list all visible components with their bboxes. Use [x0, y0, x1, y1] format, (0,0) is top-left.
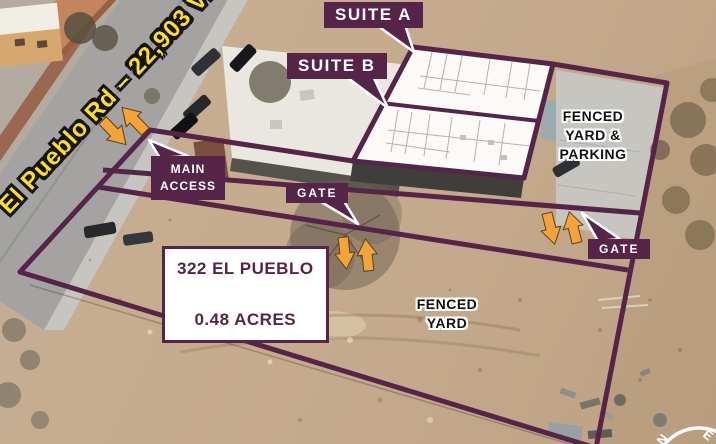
- parcel-info-box: 322 EL PUEBLO 0.48 ACRES: [162, 246, 329, 343]
- suite-b-callout: SUITE B: [287, 53, 387, 79]
- gate-left-callout: GATE: [286, 183, 348, 203]
- gate-right-callout: GATE: [588, 239, 650, 259]
- parcel-acreage: 0.48 ACRES: [194, 310, 296, 329]
- fenced-yard-parking-label: FENCED YARD & PARKING: [543, 107, 643, 164]
- main-access-callout: MAIN ACCESS: [151, 156, 225, 200]
- fenced-yard-label: FENCED YARD: [402, 295, 492, 333]
- aerial-site-photo: N E SUITE A SUITE B MAIN ACCESS GATE GAT…: [0, 0, 716, 444]
- parcel-address: 322 EL PUEBLO: [177, 259, 314, 278]
- suite-a-callout: SUITE A: [324, 2, 423, 28]
